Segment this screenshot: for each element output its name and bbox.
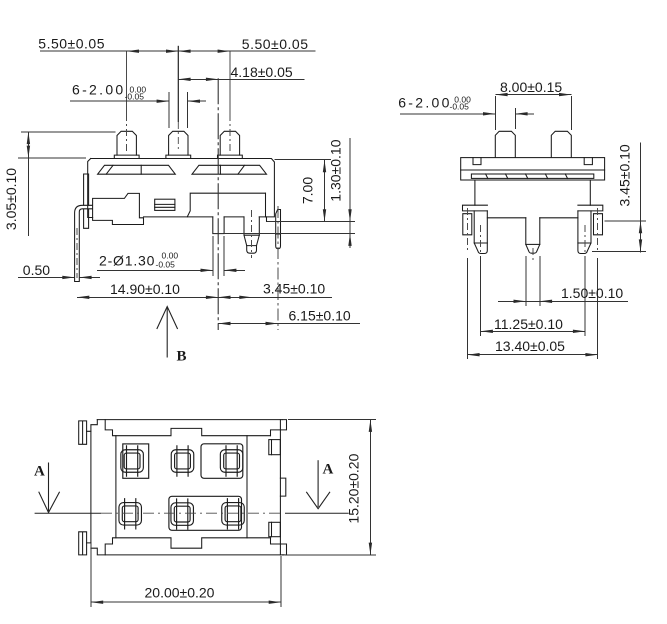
svg-text:7.00: 7.00	[300, 177, 316, 204]
svg-text:6-2.00: 6-2.00	[72, 82, 126, 98]
svg-text:A: A	[34, 464, 45, 480]
svg-text:1.30±0.10: 1.30±0.10	[328, 139, 344, 201]
svg-text:14.90±0.10: 14.90±0.10	[110, 281, 180, 297]
svg-text:B: B	[177, 349, 187, 365]
svg-text:6-2.00: 6-2.00	[398, 95, 452, 111]
svg-text:5.50±0.05: 5.50±0.05	[242, 36, 309, 52]
svg-text:-0.05: -0.05	[450, 101, 470, 111]
svg-text:11.25±0.10: 11.25±0.10	[494, 316, 563, 332]
svg-text:1.50±0.10: 1.50±0.10	[561, 285, 623, 301]
svg-text:3.45±0.10: 3.45±0.10	[263, 281, 325, 297]
svg-text:0.50: 0.50	[23, 262, 50, 278]
svg-text:8.00±0.15: 8.00±0.15	[500, 79, 562, 95]
svg-text:2-Ø1.30: 2-Ø1.30	[99, 253, 155, 269]
svg-text:20.00±0.20: 20.00±0.20	[145, 584, 215, 600]
svg-text:4.18±0.05: 4.18±0.05	[231, 64, 293, 80]
svg-text:13.40±0.05: 13.40±0.05	[495, 338, 565, 354]
svg-text:6.15±0.10: 6.15±0.10	[289, 307, 351, 323]
svg-text:3.45±0.10: 3.45±0.10	[617, 144, 633, 206]
svg-text:-0.05: -0.05	[125, 92, 145, 102]
svg-text:A: A	[323, 462, 334, 478]
svg-text:15.20±0.20: 15.20±0.20	[346, 453, 362, 523]
svg-text:5.50±0.05: 5.50±0.05	[38, 35, 105, 51]
svg-text:3.05±0.10: 3.05±0.10	[3, 168, 19, 230]
svg-text:-0.05: -0.05	[156, 259, 176, 269]
